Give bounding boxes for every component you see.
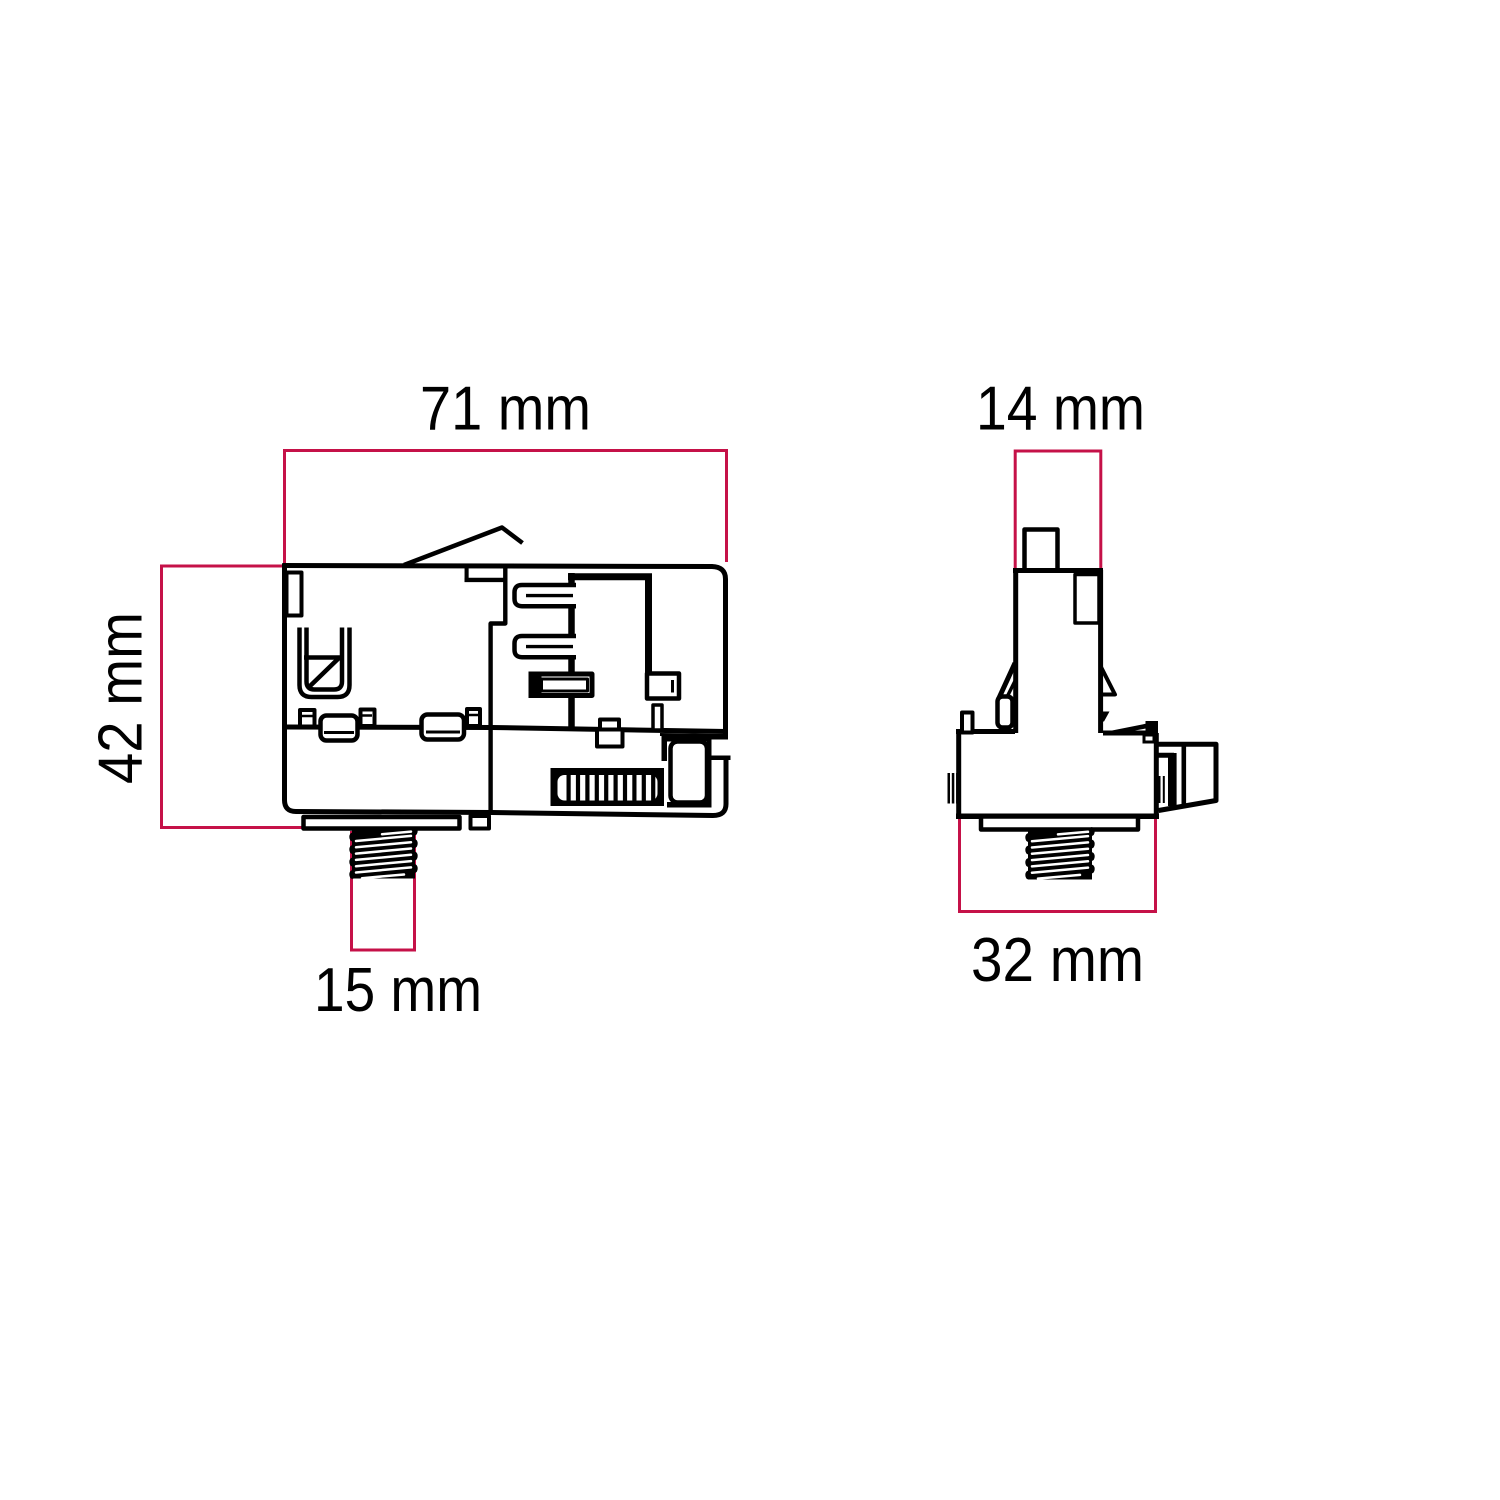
- svg-text:14 mm: 14 mm: [976, 375, 1145, 444]
- svg-text:71 mm: 71 mm: [420, 375, 591, 444]
- svg-text:32 mm: 32 mm: [971, 926, 1144, 995]
- svg-text:15 mm: 15 mm: [314, 956, 482, 1025]
- svg-text:42 mm: 42 mm: [87, 612, 156, 784]
